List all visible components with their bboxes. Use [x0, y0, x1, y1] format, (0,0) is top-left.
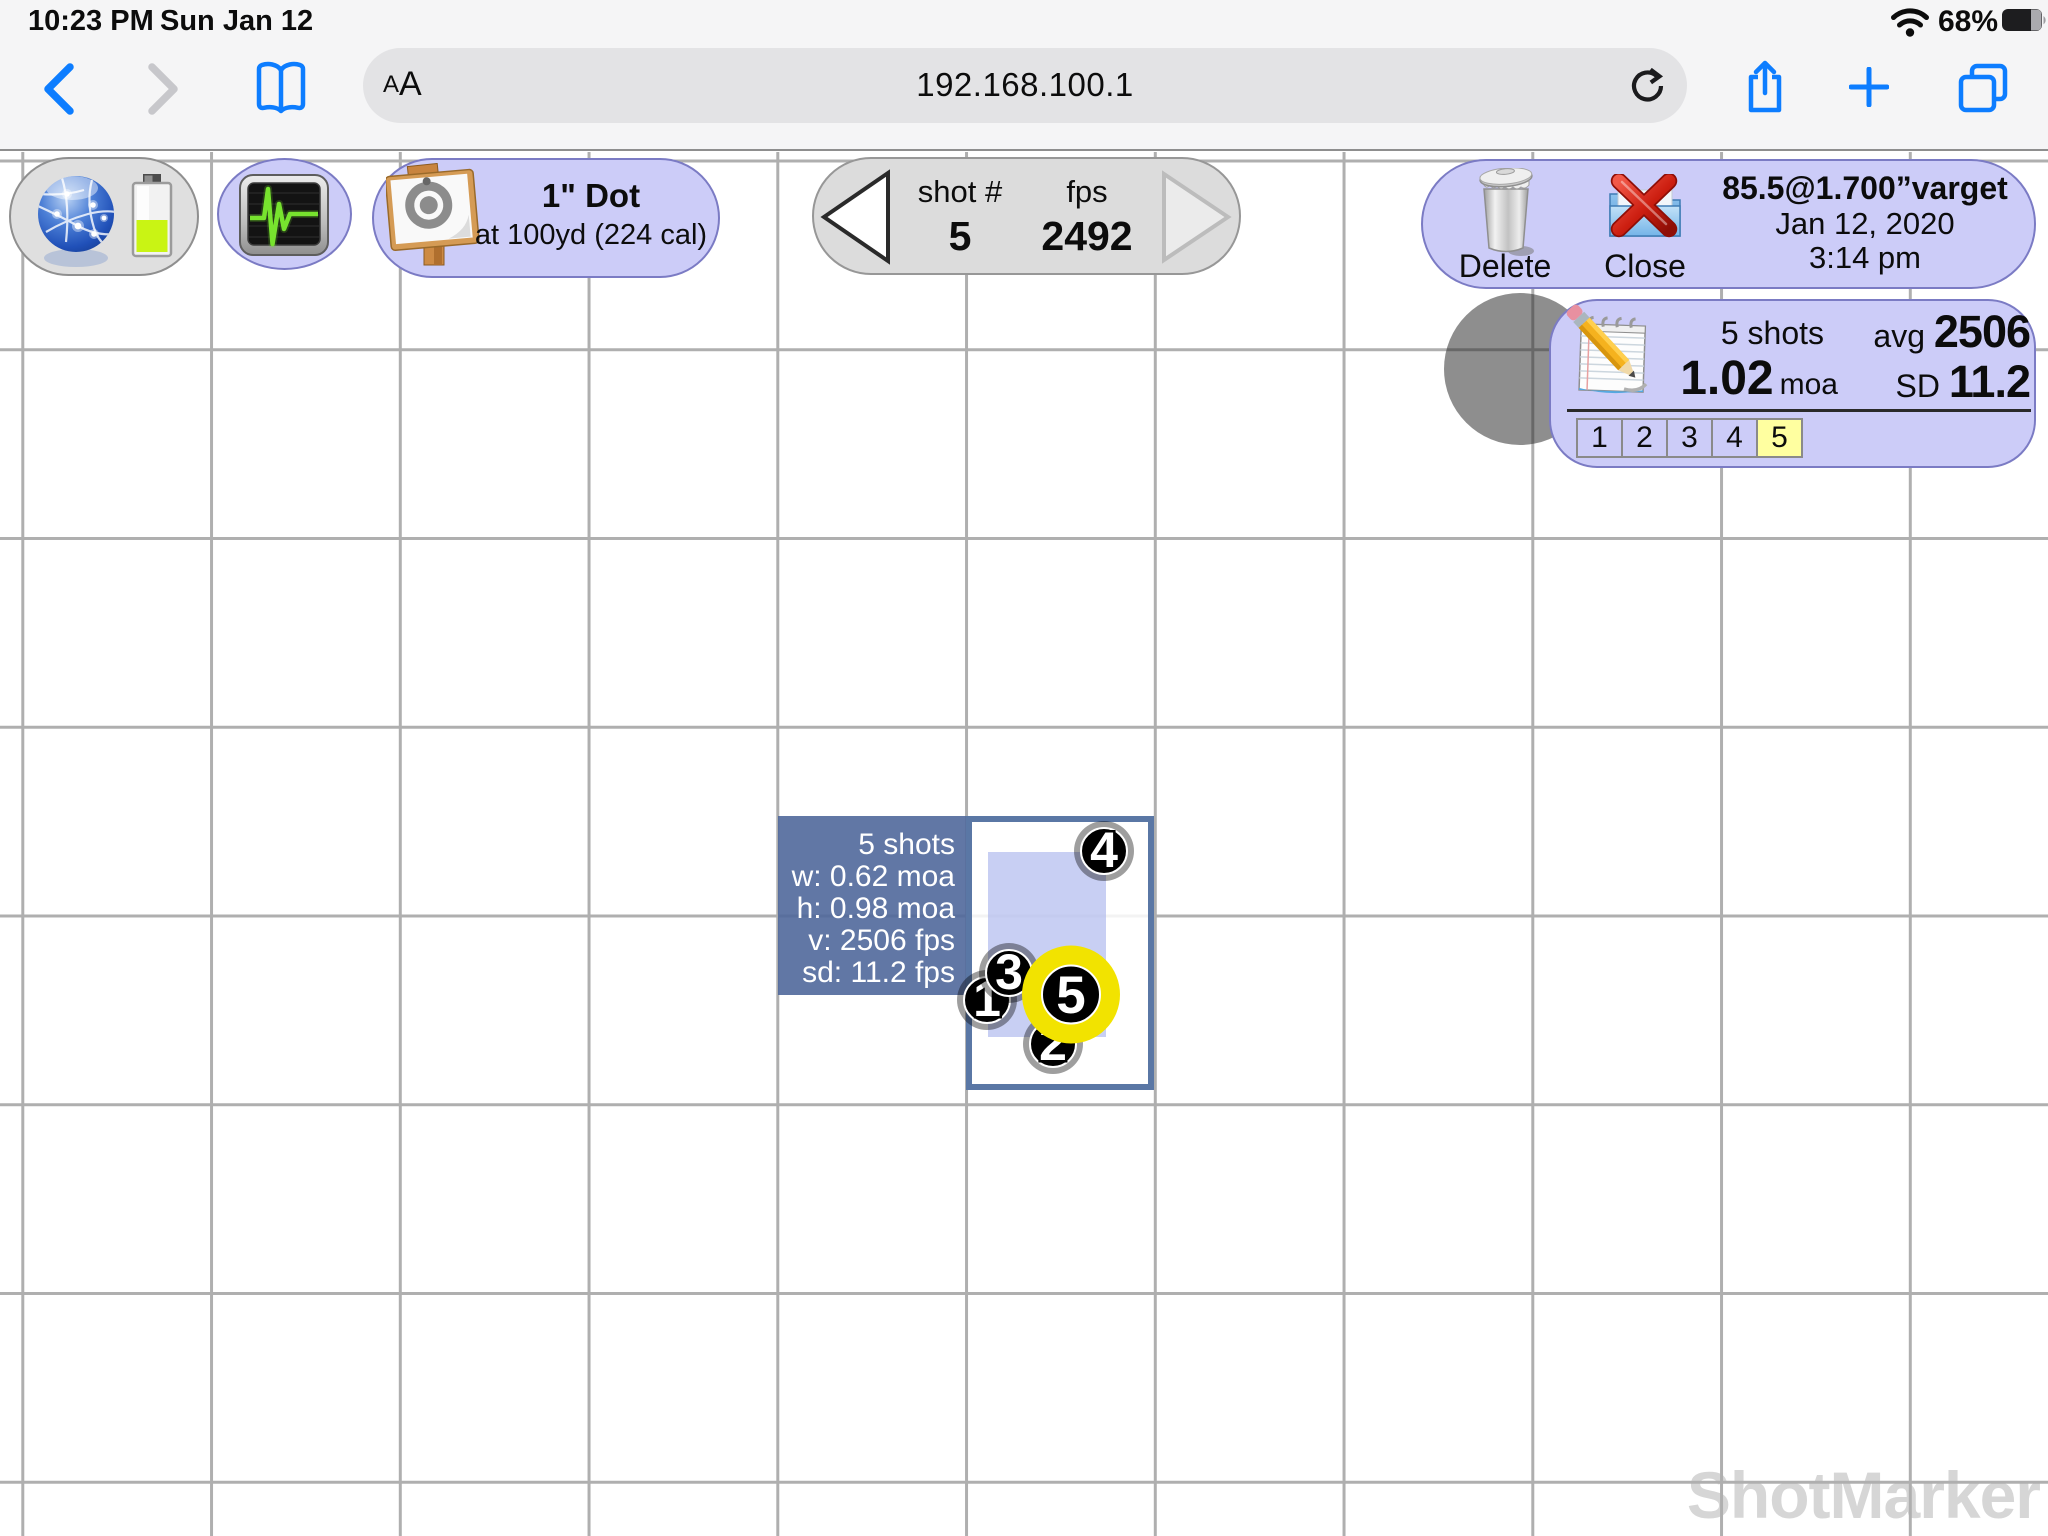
svg-text:sd: 11.2 fps: sd: 11.2 fps	[802, 956, 955, 989]
svg-text:5: 5	[1056, 966, 1085, 1025]
svg-text:3: 3	[995, 944, 1023, 1000]
svg-text:v: 2506 fps: v: 2506 fps	[808, 924, 955, 957]
svg-text:4: 4	[1090, 822, 1118, 878]
svg-text:h: 0.98 moa: h: 0.98 moa	[797, 892, 956, 925]
svg-text:w: 0.62 moa: w: 0.62 moa	[791, 860, 956, 893]
svg-text:5 shots: 5 shots	[858, 828, 955, 861]
